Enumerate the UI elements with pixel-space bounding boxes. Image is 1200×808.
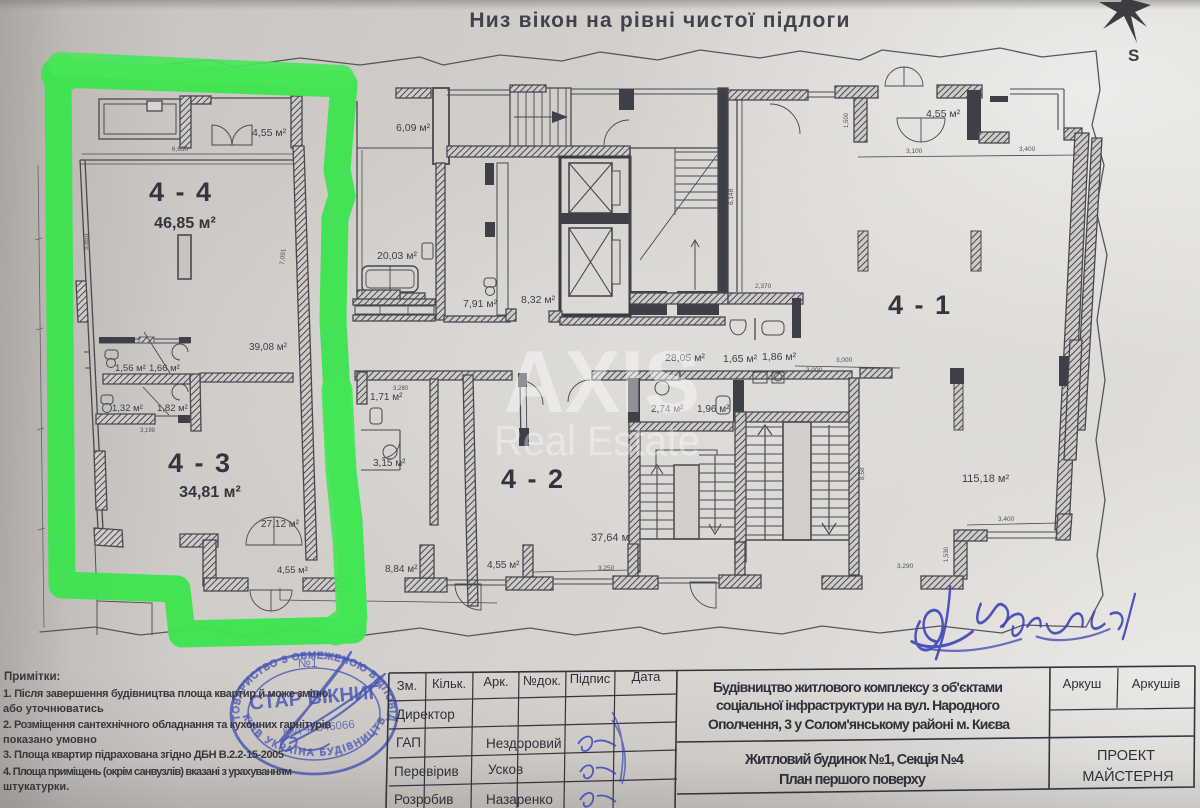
svg-text:4 - 1: 4 - 1 — [888, 290, 952, 320]
svg-text:Аркушів: Аркушів — [1132, 676, 1181, 691]
svg-text:1,500: 1,500 — [844, 112, 850, 128]
svg-text:Назаренко: Назаренко — [486, 792, 553, 807]
svg-text:1,96 м²: 1,96 м² — [697, 404, 730, 415]
svg-text:8,58: 8,58 — [859, 467, 866, 480]
svg-text:3,290: 3,290 — [897, 563, 914, 570]
svg-text:або уточнюватись: або уточнюватись — [3, 703, 104, 715]
svg-text:3. Площа квартир підрахована з: 3. Площа квартир підрахована згідно ДБН … — [3, 749, 284, 761]
svg-text:соціальної інфраструктури на в: соціальної інфраструктури на вул. Народн… — [716, 697, 1000, 713]
svg-text:3,000: 3,000 — [836, 357, 853, 364]
svg-text:1,71 м²: 1,71 м² — [370, 392, 403, 403]
svg-text:6,148: 6,148 — [728, 188, 735, 205]
svg-text:4 - 2: 4 - 2 — [501, 464, 565, 494]
svg-text:Примітки:: Примітки: — [4, 671, 60, 683]
svg-text:1. Після завершення будівництв: 1. Після завершення будівництва площа кв… — [3, 688, 331, 700]
svg-text:Житловий будинок №1, Секція №4: Житловий будинок №1, Секція №4 — [744, 752, 964, 768]
svg-text:115,18 м²: 115,18 м² — [962, 473, 1009, 485]
svg-text:ПРОЕКТ: ПРОЕКТ — [1097, 748, 1155, 764]
svg-text:3,100: 3,100 — [906, 148, 923, 155]
svg-text:3,000: 3,000 — [806, 367, 823, 374]
svg-text:МАЙСТЕРНЯ: МАЙСТЕРНЯ — [1082, 767, 1173, 785]
svg-text:Дата: Дата — [632, 669, 662, 684]
svg-text:1,32 м²: 1,32 м² — [112, 403, 143, 414]
svg-text:2,370: 2,370 — [755, 283, 772, 290]
svg-text:Арк.: Арк. — [483, 674, 508, 689]
svg-text:3,400: 3,400 — [998, 516, 1015, 523]
svg-text:1,530: 1,530 — [944, 546, 950, 562]
svg-text:3,15 м²: 3,15 м² — [373, 458, 406, 469]
svg-text:6,650: 6,650 — [172, 146, 189, 153]
svg-text:Нездоровий: Нездоровий — [486, 736, 562, 751]
svg-text:Зм.: Зм. — [397, 678, 417, 693]
svg-text:3,198: 3,198 — [140, 428, 156, 434]
svg-text:34,81 м²: 34,81 м² — [179, 484, 241, 501]
svg-text:S: S — [1128, 46, 1139, 65]
svg-text:1,65 м²: 1,65 м² — [723, 353, 758, 365]
svg-text:Директор: Директор — [396, 707, 455, 722]
svg-text:1,56 м²: 1,56 м² — [115, 363, 146, 374]
svg-text:3,280: 3,280 — [393, 386, 409, 392]
svg-text:2. Розміщення сантехнічного об: 2. Розміщення сантехнічного обладнання т… — [3, 719, 331, 731]
svg-text:1,82 м²: 1,82 м² — [157, 403, 188, 414]
svg-text:4. Площа приміщень (окрім санв: 4. Площа приміщень (окрім санвузлів) вка… — [3, 766, 292, 778]
svg-text:ГАП: ГАП — [396, 735, 421, 750]
svg-text:Кільк.: Кільк. — [432, 676, 466, 691]
svg-text:План першого поверху: План першого поверху — [779, 772, 926, 788]
svg-text:4,55 м²: 4,55 м² — [277, 565, 308, 576]
svg-text:46,85 м²: 46,85 м² — [154, 215, 216, 232]
svg-text:20,03 м²: 20,03 м² — [377, 250, 417, 262]
svg-text:Будівництво житлового комплекс: Будівництво житлового комплексу з об'єкт… — [713, 679, 1003, 695]
svg-text:3,400: 3,400 — [1019, 146, 1036, 153]
svg-text:1,86 м²: 1,86 м² — [762, 351, 797, 363]
svg-text:7,91 м²: 7,91 м² — [463, 298, 498, 310]
svg-text:показано умовно: показано умовно — [3, 734, 97, 746]
svg-text:8,84 м²: 8,84 м² — [385, 564, 418, 575]
svg-text:штукатурки.: штукатурки. — [3, 781, 69, 793]
svg-text:Низ вікон на рівні чистої підл: Низ вікон на рівні чистої підлоги — [469, 9, 850, 32]
svg-text:Аркуш: Аркуш — [1063, 676, 1102, 691]
svg-text:6,09 м²: 6,09 м² — [396, 122, 431, 134]
svg-text:4,55 м²: 4,55 м² — [487, 560, 520, 571]
svg-text:Розробив: Розробив — [394, 792, 453, 807]
svg-text:№1: №1 — [298, 656, 318, 670]
svg-text:27,12 м²: 27,12 м² — [261, 519, 300, 530]
svg-text:39,08 м²: 39,08 м² — [249, 342, 288, 353]
svg-text:Підпис: Підпис — [570, 671, 611, 686]
svg-text:Усков: Усков — [488, 762, 523, 777]
svg-text:8,32 м²: 8,32 м² — [521, 294, 556, 306]
svg-text:37,64 м²: 37,64 м² — [591, 532, 633, 544]
svg-text:Ополчення, 3 у Солом'янському: Ополчення, 3 у Солом'янському районі м. … — [708, 716, 1010, 732]
svg-text:4,55 м²: 4,55 м² — [252, 127, 287, 139]
svg-text:4 - 4: 4 - 4 — [149, 177, 213, 207]
svg-text:Real Estate: Real Estate — [494, 417, 700, 464]
svg-text:5,850: 5,850 — [83, 233, 90, 250]
svg-text:№док.: №док. — [523, 673, 561, 688]
svg-text:Перевірив: Перевірив — [394, 764, 459, 779]
svg-text:4 - 3: 4 - 3 — [168, 448, 232, 478]
svg-text:7,091: 7,091 — [279, 248, 287, 265]
